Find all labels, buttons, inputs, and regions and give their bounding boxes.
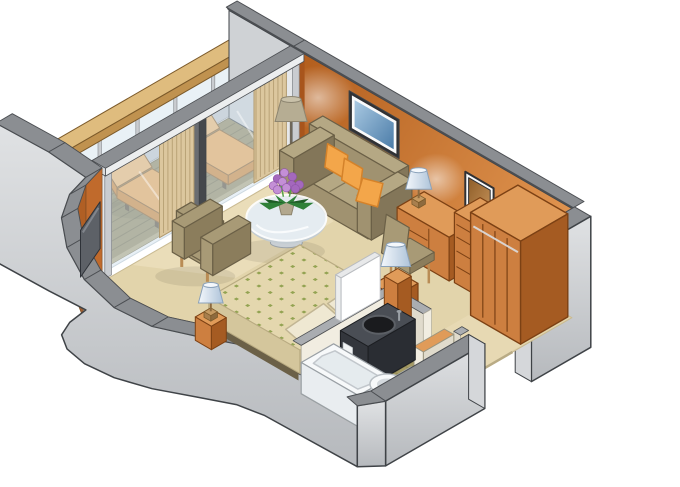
armchair-arm-front: [201, 237, 213, 275]
vanity-faucet-dot: [397, 310, 402, 313]
vanity-basin: [363, 316, 395, 334]
blossom: [280, 169, 288, 177]
floor-lamp-shade-top: [281, 97, 301, 103]
table-glass-top: [246, 195, 326, 241]
blossom: [288, 173, 296, 181]
blossom: [282, 184, 290, 192]
wardrobe: [471, 185, 568, 344]
blossom: [273, 186, 281, 194]
bedside-lamp-shade-top: [387, 242, 405, 247]
blossom: [291, 185, 299, 193]
door-post-side: [105, 169, 112, 279]
stateroom-isometric-floorplan: Stateroom Floor Plan - Isometric Cutaway: [0, 0, 680, 487]
floor-plan: Stateroom Floor Plan - Isometric Cutaway: [0, 0, 680, 487]
vanity-mirror-panel-front: [336, 275, 342, 322]
bedside-lamp-shade: [381, 245, 411, 267]
desk-lamp-shade-top: [411, 168, 427, 173]
low-wall-cut-end: [469, 334, 485, 408]
low-wall-corner-outer: [357, 401, 385, 467]
foot-lamp-shade-top: [203, 282, 218, 287]
armchair-arm-front: [172, 221, 184, 259]
